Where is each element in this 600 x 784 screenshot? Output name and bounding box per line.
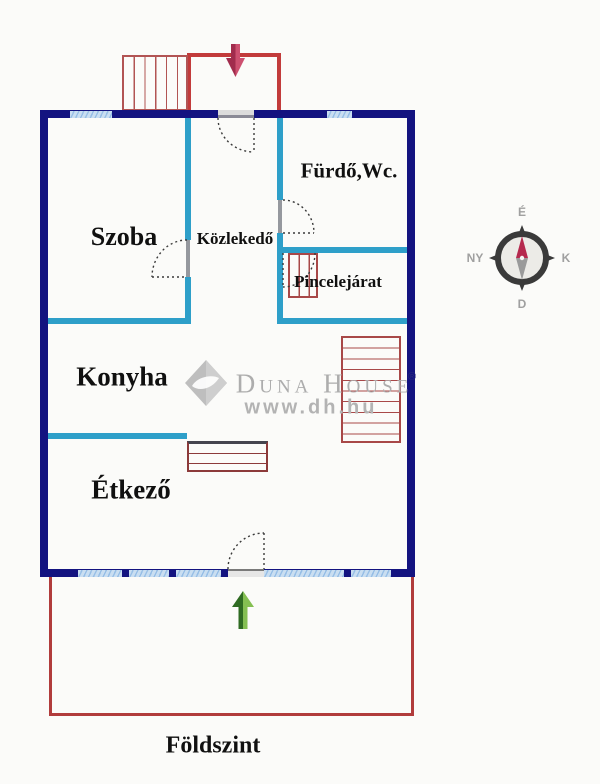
- room-label-konyha: Konyha: [76, 362, 168, 393]
- door-arc-szoba: [152, 240, 187, 277]
- compass-north-label: É: [518, 205, 526, 219]
- room-label-kozlekedo: Közlekedő: [197, 229, 274, 249]
- registered-trademark-icon: ®: [408, 371, 416, 383]
- compass-rose-icon: [482, 218, 562, 298]
- door-arc-terrace: [228, 533, 264, 569]
- watermark-brand: Duna House: [236, 369, 413, 400]
- compass-east-label: K: [562, 251, 571, 265]
- door-arc-furdo: [283, 200, 314, 233]
- floorplan-canvas: Szoba Közlekedő Fürdő,Wc. Pincelejárat K…: [0, 0, 600, 784]
- compass-west-label: NY: [467, 251, 484, 265]
- room-label-etkezo: Étkező: [91, 475, 170, 506]
- entrance-arrow-down-icon: [226, 44, 246, 79]
- floor-title: Földszint: [166, 733, 261, 760]
- terrace-arrow-up-icon: [232, 591, 254, 629]
- compass-south-label: D: [518, 297, 527, 311]
- door-arc-entry: [218, 118, 254, 152]
- dunahouse-logo-icon: [184, 359, 228, 407]
- room-label-szoba: Szoba: [91, 222, 157, 252]
- room-label-pincelejarat: Pincelejárat: [294, 272, 382, 292]
- room-label-furdo-wc: Fürdő,Wc.: [301, 159, 398, 184]
- watermark-website: www.dh.hu: [245, 397, 378, 420]
